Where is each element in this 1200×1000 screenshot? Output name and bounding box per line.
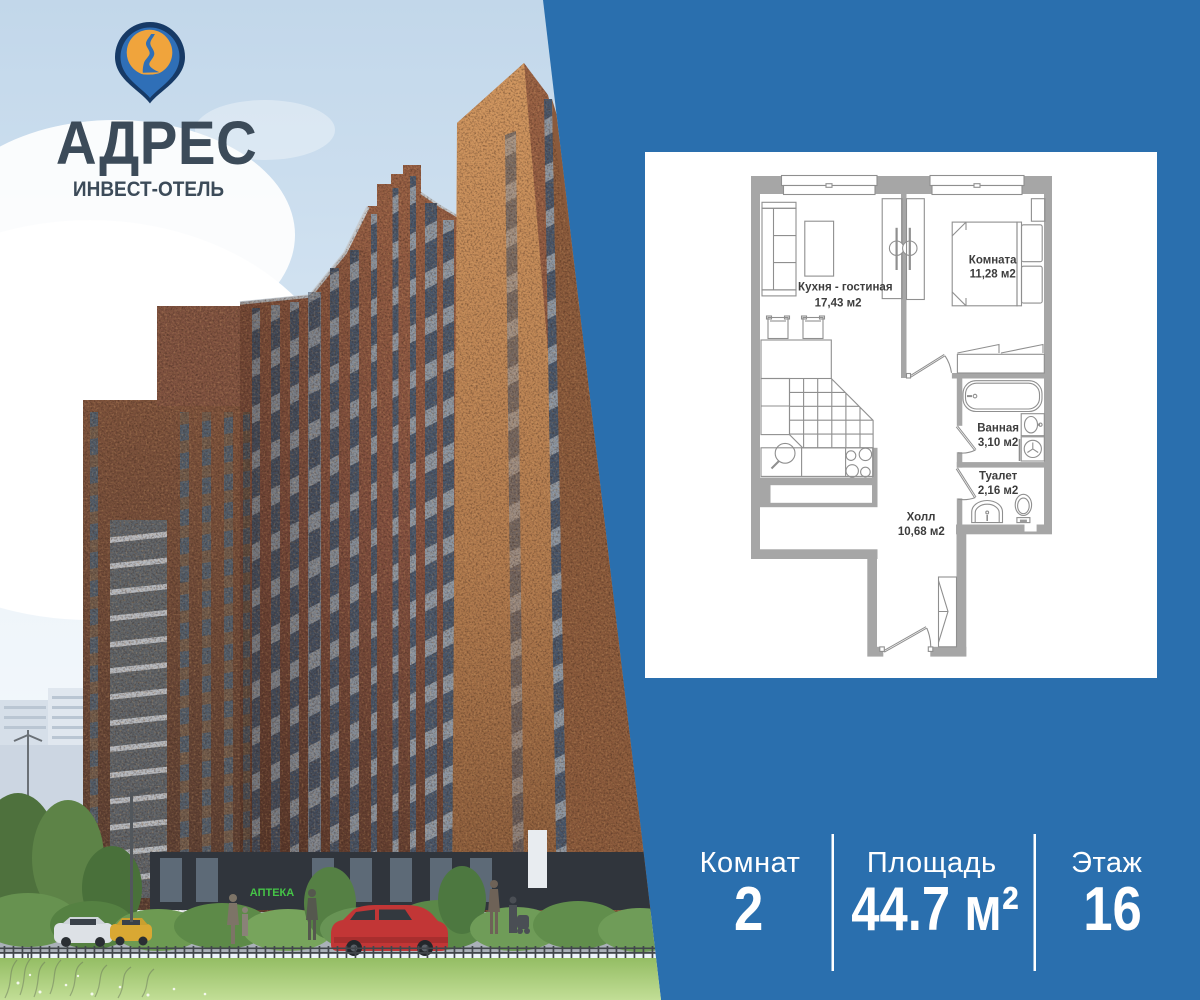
svg-text:АПТЕКА: АПТЕКА: [250, 887, 294, 899]
svg-text:Туалет: Туалет: [979, 471, 1018, 483]
svg-text:3,10 м2: 3,10 м2: [978, 437, 1018, 449]
svg-text:Кухня - гостиная: Кухня - гостиная: [798, 282, 893, 294]
svg-text:Площадь: Площадь: [867, 847, 997, 879]
svg-text:АДРЕС: АДРЕС: [56, 110, 257, 177]
svg-text:Холл: Холл: [907, 512, 936, 524]
svg-text:2: 2: [734, 875, 763, 944]
svg-text:44.7 м²: 44.7 м²: [851, 875, 1019, 944]
svg-text:10,68 м2: 10,68 м2: [898, 526, 945, 538]
svg-text:16: 16: [1083, 875, 1142, 944]
svg-text:Ванная: Ванная: [977, 423, 1019, 435]
svg-text:2,16 м2: 2,16 м2: [978, 485, 1018, 497]
svg-text:17,43 м2: 17,43 м2: [815, 298, 862, 310]
svg-text:ИНВЕСТ-ОТЕЛЬ: ИНВЕСТ-ОТЕЛЬ: [73, 178, 224, 201]
svg-text:11,28 м2: 11,28 м2: [970, 269, 1016, 281]
svg-text:Комната: Комната: [969, 255, 1017, 267]
